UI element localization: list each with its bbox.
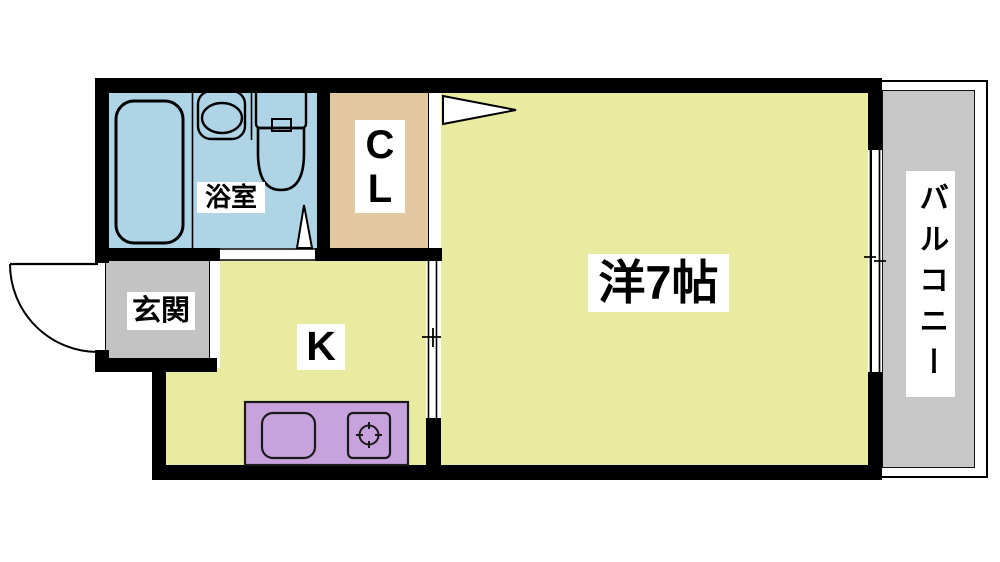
wall-bathroom-closet — [317, 93, 330, 248]
main-room-label: 洋7帖 — [588, 254, 729, 312]
bathroom-label: 浴室 — [197, 182, 265, 213]
wall-kitchen-left — [152, 358, 166, 468]
closet-label: CL — [355, 120, 405, 213]
front-door-swing-arc-icon — [10, 264, 98, 352]
bathroom-area — [109, 93, 317, 248]
entrance-label: 玄関 — [127, 292, 195, 330]
wall-bottom — [152, 465, 882, 480]
wall-closet-bottom — [315, 248, 442, 261]
kitchen-area-lower — [166, 368, 426, 465]
wall-right-upper — [868, 78, 882, 150]
wall-partition-stub — [426, 418, 441, 465]
wall-left-upper — [95, 78, 109, 263]
wall-top — [95, 78, 882, 93]
balcony-label: バルコニー — [906, 171, 955, 397]
room-door-panel — [428, 93, 442, 248]
floor-plan: 浴室 CL 玄関 K 洋7帖 バルコニー — [0, 0, 1000, 562]
kitchen-label: K — [297, 324, 345, 370]
wall-bathroom-bottom-left — [95, 248, 220, 261]
wall-right-lower — [868, 372, 882, 480]
